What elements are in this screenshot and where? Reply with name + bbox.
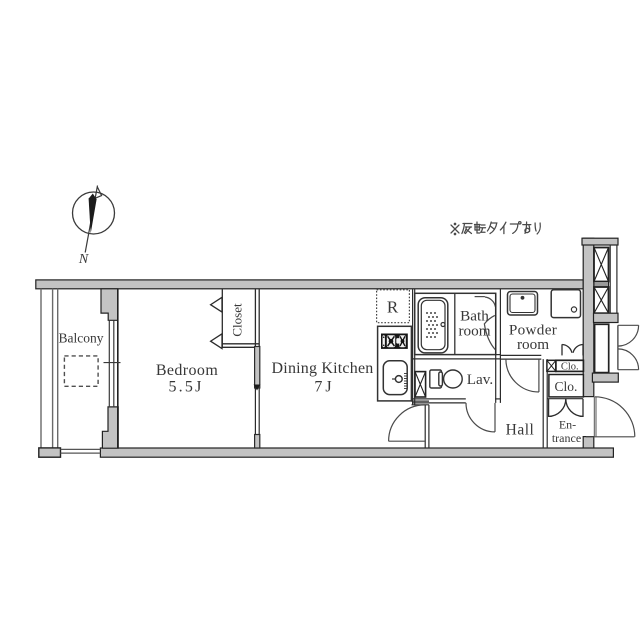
svg-text:room: room [458,323,490,340]
svg-text:Bedroom: Bedroom [156,362,219,379]
svg-text:N: N [78,252,89,267]
svg-text:7J: 7J [314,379,334,396]
svg-text:Lav.: Lav. [467,371,493,388]
svg-text:room: room [517,336,549,353]
svg-text:Clo.: Clo. [561,362,579,373]
svg-text:5.5J: 5.5J [168,379,203,396]
svg-text:Balcony: Balcony [59,331,104,346]
svg-text:Closet: Closet [230,303,245,337]
svg-text:Hall: Hall [506,422,535,439]
svg-text:En-: En- [559,418,576,432]
svg-text:Clo.: Clo. [555,379,578,394]
svg-text:Dining Kitchen: Dining Kitchen [272,360,374,377]
svg-text:trance: trance [552,431,581,445]
svg-text:R: R [387,298,399,317]
